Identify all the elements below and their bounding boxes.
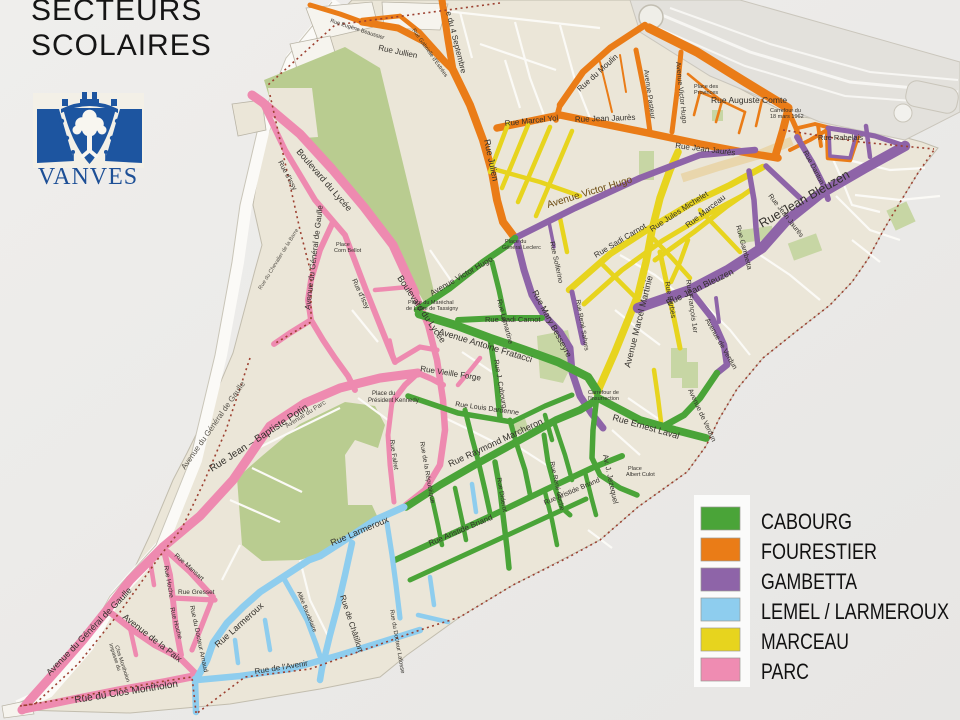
svg-text:GAMBETTA: GAMBETTA [761, 569, 857, 594]
svg-text:de Lattre de Tassigny: de Lattre de Tassigny [406, 306, 458, 312]
svg-text:PARC: PARC [761, 659, 809, 684]
svg-text:Albert Culot: Albert Culot [626, 472, 655, 478]
svg-text:Général Leclerc: Général Leclerc [502, 245, 541, 251]
svg-text:Corn Bellot: Corn Bellot [334, 248, 362, 254]
svg-text:LEMEL / LARMEROUX: LEMEL / LARMEROUX [761, 599, 949, 624]
svg-text:Rue Auguste Comte: Rue Auguste Comte [711, 95, 787, 105]
svg-text:Président Kennedy: Président Kennedy [368, 398, 419, 404]
svg-text:FOURESTIER: FOURESTIER [761, 539, 877, 564]
svg-text:Place du: Place du [372, 391, 395, 397]
svg-text:MARCEAU: MARCEAU [761, 629, 849, 654]
svg-text:Provinces: Provinces [694, 90, 718, 96]
svg-text:CABOURG: CABOURG [761, 509, 852, 534]
svg-text:VANVES: VANVES [38, 164, 138, 190]
svg-text:SCOLAIRES: SCOLAIRES [31, 29, 212, 62]
svg-text:18 mars 1962: 18 mars 1962 [770, 114, 804, 120]
svg-text:Rue Gresset: Rue Gresset [178, 589, 215, 596]
svg-text:Rue Sadi Carnot: Rue Sadi Carnot [485, 315, 541, 324]
svg-text:l'Insurrection: l'Insurrection [588, 396, 619, 402]
svg-text:SECTEURS: SECTEURS [31, 0, 202, 27]
svg-text:Rue Rabelais: Rue Rabelais [818, 133, 863, 142]
